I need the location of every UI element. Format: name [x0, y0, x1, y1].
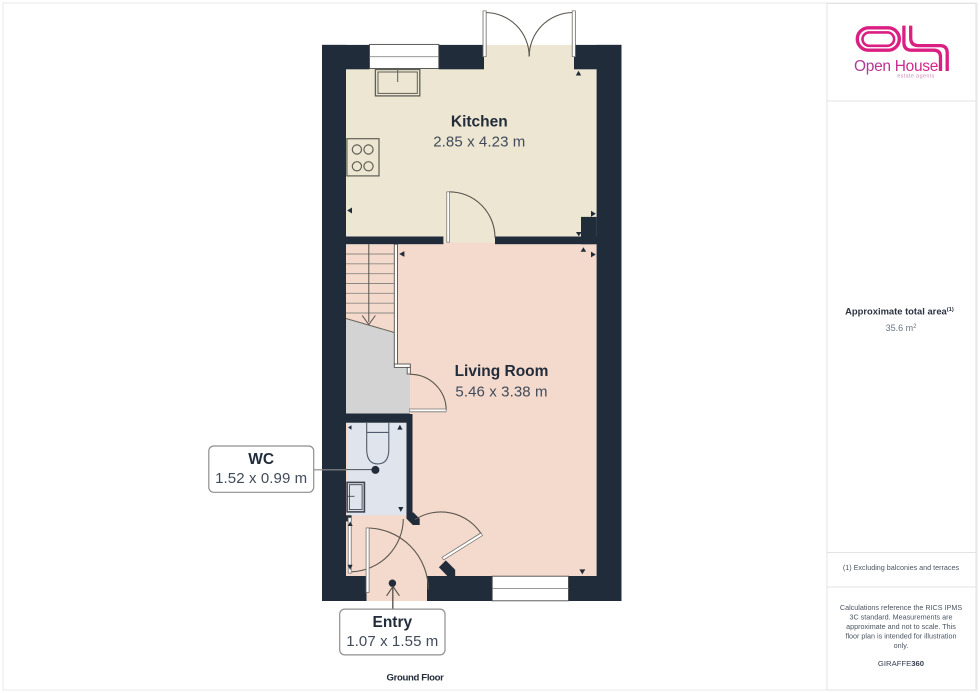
- svg-text:WC: WC: [248, 451, 274, 468]
- svg-text:(1) Excluding balconies and te: (1) Excluding balconies and terraces: [843, 563, 960, 572]
- svg-text:estate agents: estate agents: [897, 74, 935, 80]
- svg-text:3C standard. Measurements are: 3C standard. Measurements are: [849, 613, 952, 622]
- svg-text:Living Room: Living Room: [455, 363, 549, 380]
- svg-text:35.6 m2: 35.6 m2: [886, 323, 918, 333]
- svg-text:Ground Floor: Ground Floor: [386, 673, 444, 684]
- svg-text:Approximate total area(1): Approximate total area(1): [845, 305, 954, 316]
- svg-text:Calculations reference the RIC: Calculations reference the RICS IPMS: [840, 603, 962, 612]
- svg-text:1.52 x 0.99 m: 1.52 x 0.99 m: [215, 470, 307, 487]
- svg-text:approximate and not to scale.: approximate and not to scale. This: [846, 622, 956, 631]
- svg-text:Kitchen: Kitchen: [451, 113, 508, 130]
- svg-text:1.07 x 1.55 m: 1.07 x 1.55 m: [346, 633, 438, 650]
- svg-text:2.85 x 4.23 m: 2.85 x 4.23 m: [433, 133, 525, 150]
- svg-text:5.46 x 3.38 m: 5.46 x 3.38 m: [455, 384, 547, 401]
- svg-text:floor plan is intended for ill: floor plan is intended for illustration: [845, 631, 956, 640]
- svg-text:Open House: Open House: [854, 58, 938, 75]
- svg-text:GIRAFFE360: GIRAFFE360: [878, 659, 924, 668]
- svg-text:Entry: Entry: [372, 614, 412, 631]
- svg-text:only.: only.: [894, 641, 909, 650]
